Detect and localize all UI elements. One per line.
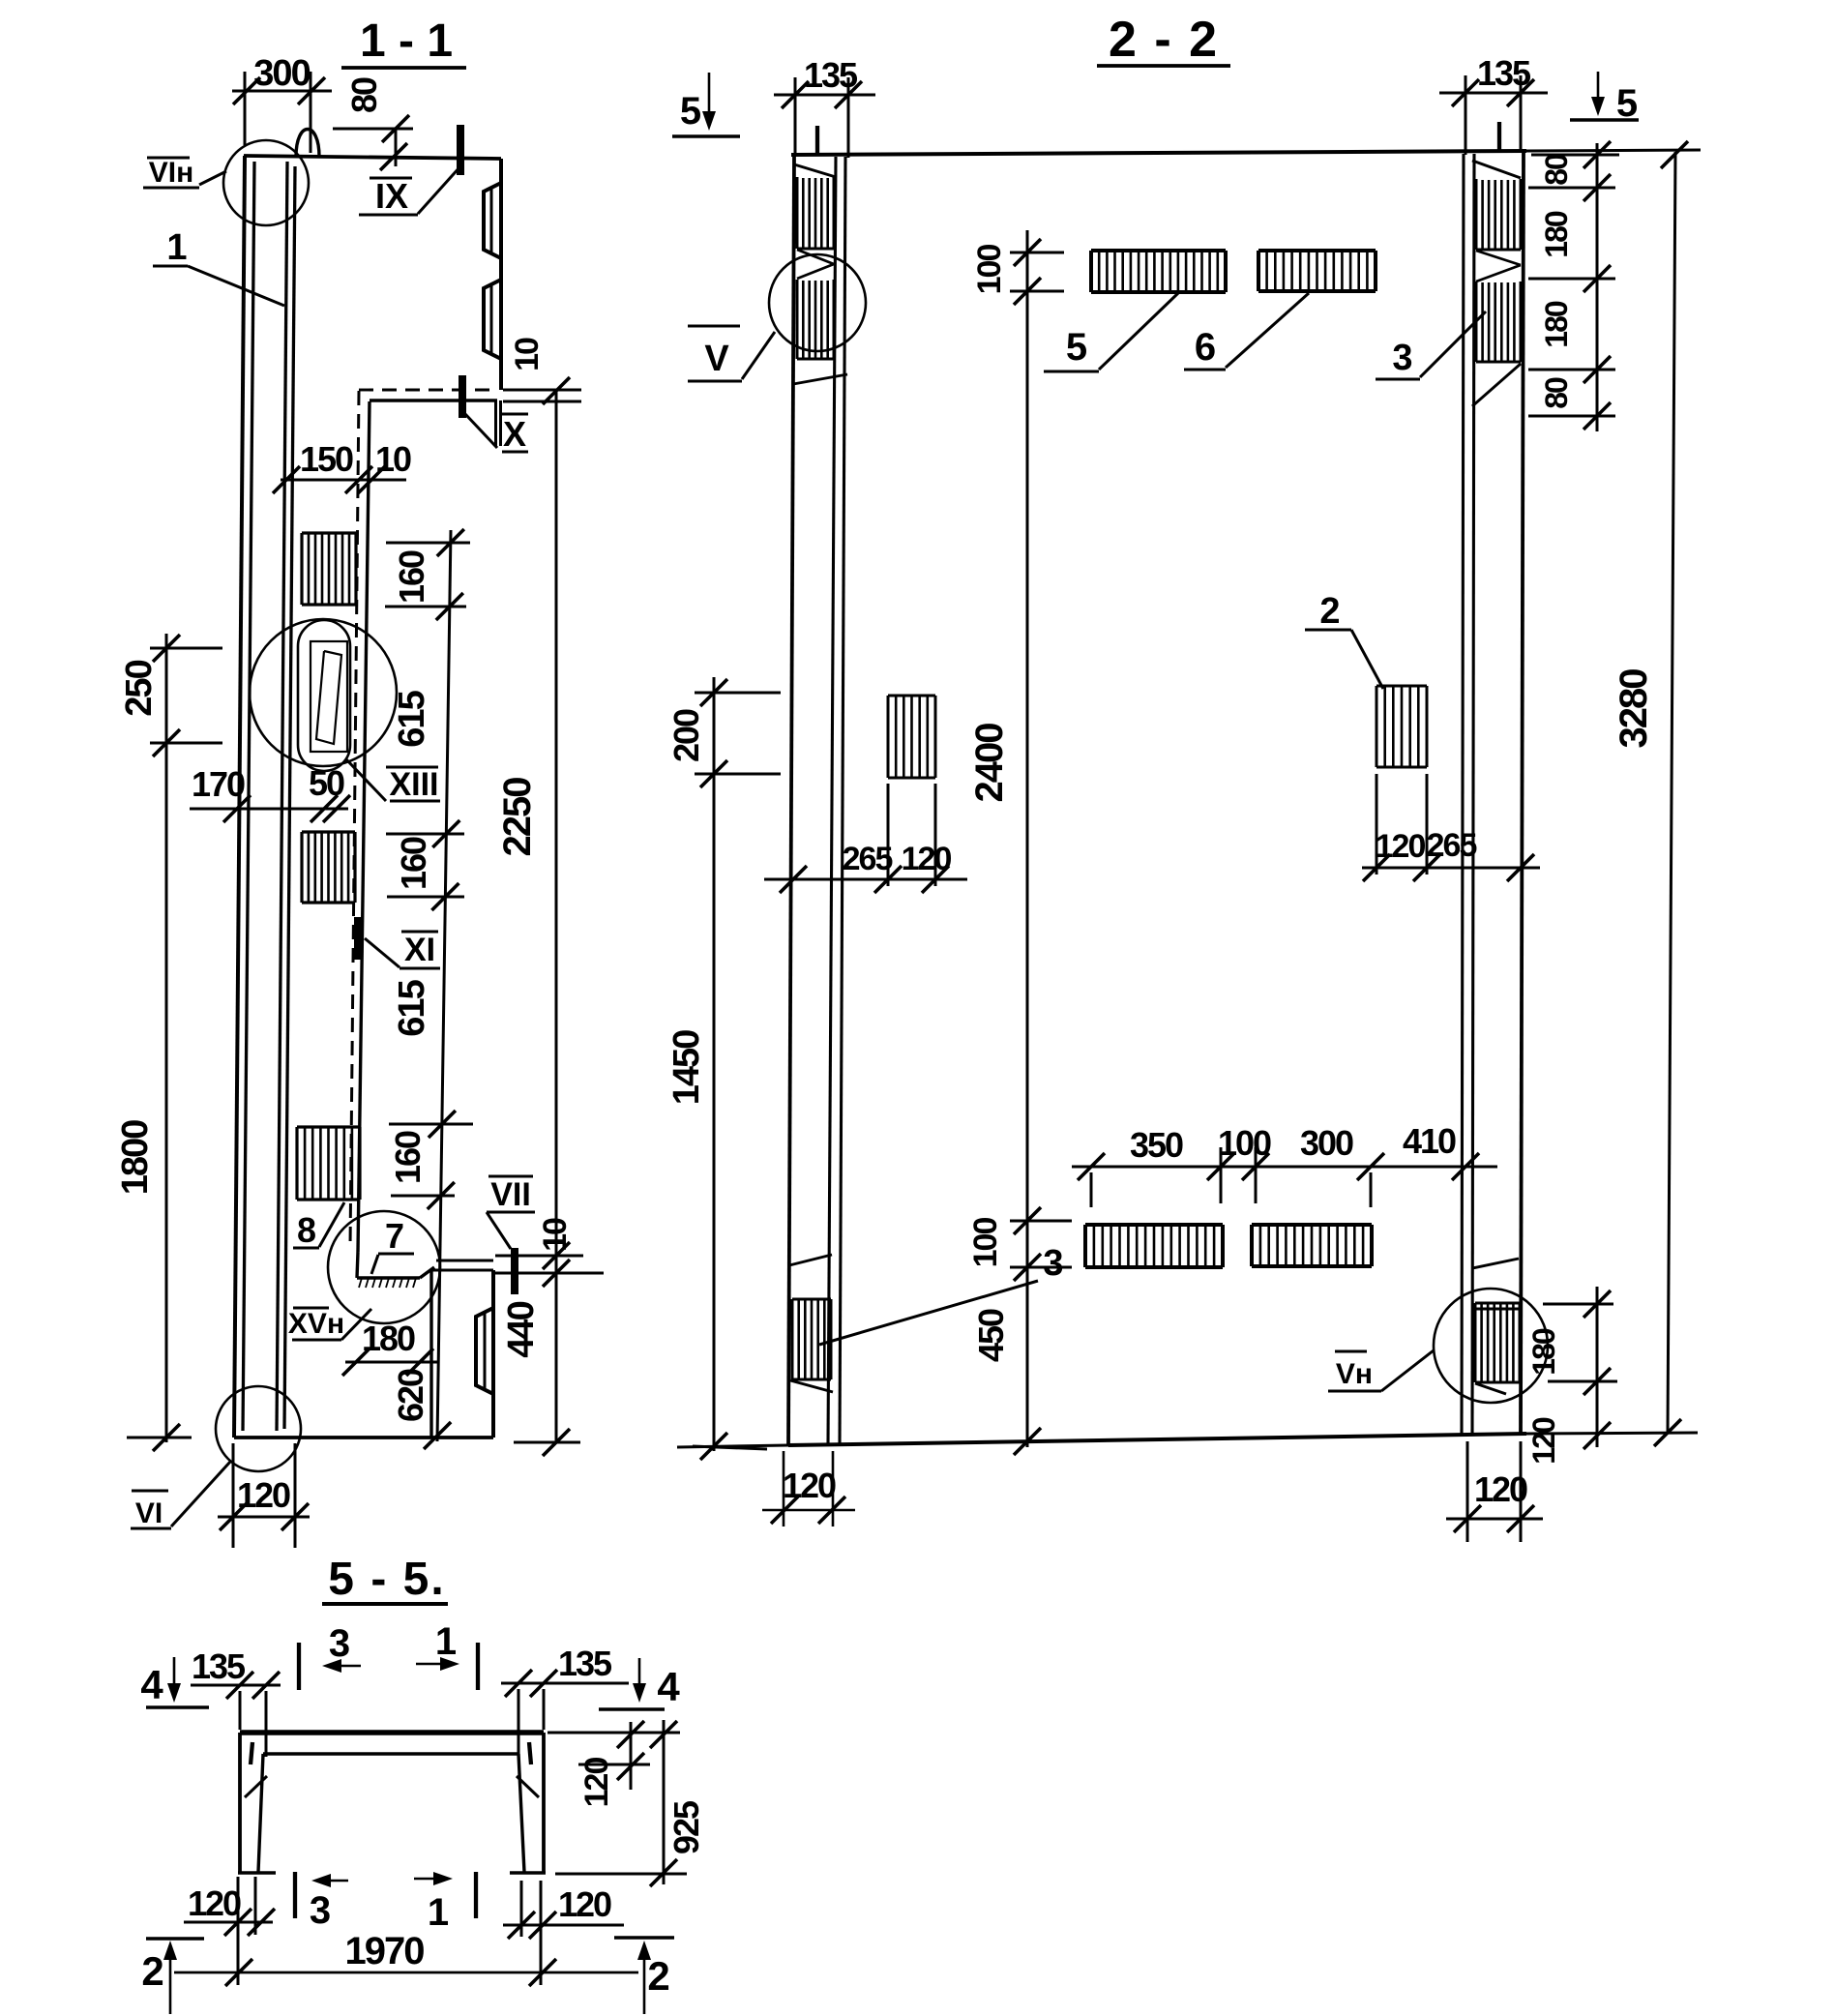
- svg-text:5: 5: [1066, 326, 1087, 369]
- svg-text:10: 10: [537, 1218, 574, 1252]
- svg-text:300: 300: [253, 53, 310, 94]
- svg-text:135: 135: [558, 1644, 612, 1683]
- svg-text:3: 3: [1043, 1243, 1062, 1284]
- svg-text:135: 135: [804, 55, 858, 95]
- svg-text:120: 120: [558, 1884, 611, 1924]
- svg-text:100: 100: [1218, 1123, 1271, 1163]
- svg-text:120: 120: [237, 1475, 290, 1515]
- svg-text:180: 180: [1526, 1328, 1561, 1376]
- svg-text:5 - 5.: 5 - 5.: [328, 1554, 445, 1605]
- svg-text:XVн: XVн: [288, 1308, 344, 1340]
- svg-text:1: 1: [435, 1620, 457, 1663]
- svg-text:350: 350: [1130, 1125, 1183, 1165]
- svg-text:1970: 1970: [345, 1930, 425, 1972]
- svg-text:Vн: Vн: [1336, 1358, 1373, 1390]
- svg-text:3: 3: [310, 1889, 330, 1932]
- svg-text:120: 120: [783, 1466, 836, 1505]
- svg-text:8: 8: [297, 1210, 315, 1250]
- svg-text:3: 3: [1392, 338, 1411, 378]
- svg-text:120: 120: [1474, 1469, 1527, 1509]
- svg-text:2 - 2: 2 - 2: [1109, 12, 1219, 68]
- svg-text:1: 1: [166, 227, 187, 268]
- svg-text:VI: VI: [135, 1497, 163, 1529]
- svg-text:170: 170: [192, 764, 245, 804]
- svg-text:IX: IX: [375, 176, 408, 216]
- svg-text:1: 1: [428, 1891, 449, 1934]
- svg-text:2: 2: [141, 1948, 163, 1994]
- svg-text:120: 120: [1376, 828, 1426, 865]
- svg-text:5: 5: [680, 90, 701, 133]
- svg-text:250: 250: [119, 660, 160, 716]
- svg-text:4: 4: [657, 1664, 680, 1709]
- svg-text:3: 3: [329, 1622, 349, 1665]
- svg-text:180: 180: [1539, 301, 1574, 348]
- svg-text:X: X: [503, 414, 526, 454]
- svg-text:440: 440: [501, 1301, 542, 1357]
- svg-text:3280: 3280: [1613, 669, 1655, 749]
- svg-text:265: 265: [1427, 827, 1477, 864]
- svg-text:VII: VII: [490, 1176, 531, 1213]
- svg-text:2: 2: [647, 1953, 668, 1999]
- svg-text:180: 180: [1539, 211, 1574, 258]
- svg-text:160: 160: [388, 1131, 428, 1184]
- svg-text:120: 120: [1526, 1417, 1561, 1465]
- svg-text:1450: 1450: [666, 1030, 707, 1105]
- svg-text:180: 180: [362, 1319, 415, 1358]
- svg-text:2: 2: [1319, 591, 1339, 632]
- svg-text:200: 200: [666, 709, 706, 762]
- svg-text:135: 135: [192, 1646, 246, 1686]
- svg-text:V: V: [704, 339, 729, 379]
- svg-text:80: 80: [1539, 377, 1574, 409]
- svg-text:VIн: VIн: [149, 157, 193, 189]
- svg-text:XIII: XIII: [389, 766, 438, 803]
- svg-text:10: 10: [375, 439, 411, 479]
- svg-text:135: 135: [1477, 53, 1531, 93]
- svg-text:7: 7: [385, 1216, 403, 1256]
- svg-text:1 - 1: 1 - 1: [360, 15, 453, 67]
- svg-text:10: 10: [509, 338, 546, 371]
- svg-text:1800: 1800: [115, 1120, 156, 1195]
- svg-text:100: 100: [971, 245, 1008, 295]
- svg-text:160: 160: [394, 837, 433, 890]
- svg-text:620: 620: [391, 1369, 430, 1422]
- svg-text:6: 6: [1195, 326, 1215, 369]
- svg-text:80: 80: [344, 77, 384, 113]
- svg-text:615: 615: [392, 979, 432, 1036]
- svg-text:265: 265: [843, 841, 893, 877]
- svg-text:100: 100: [967, 1218, 1004, 1268]
- svg-text:615: 615: [392, 690, 432, 747]
- svg-text:450: 450: [971, 1309, 1011, 1362]
- svg-text:160: 160: [392, 550, 431, 604]
- svg-text:4: 4: [140, 1662, 163, 1707]
- svg-text:120: 120: [902, 841, 952, 877]
- svg-text:2400: 2400: [968, 724, 1011, 803]
- svg-text:925: 925: [666, 1800, 706, 1854]
- svg-text:300: 300: [1300, 1123, 1353, 1163]
- svg-text:50: 50: [309, 763, 344, 803]
- svg-text:XI: XI: [404, 932, 435, 968]
- svg-text:410: 410: [1403, 1121, 1456, 1161]
- svg-text:150: 150: [300, 439, 353, 479]
- svg-text:80: 80: [1539, 154, 1574, 186]
- svg-text:2250: 2250: [496, 778, 539, 857]
- svg-text:120: 120: [188, 1883, 241, 1923]
